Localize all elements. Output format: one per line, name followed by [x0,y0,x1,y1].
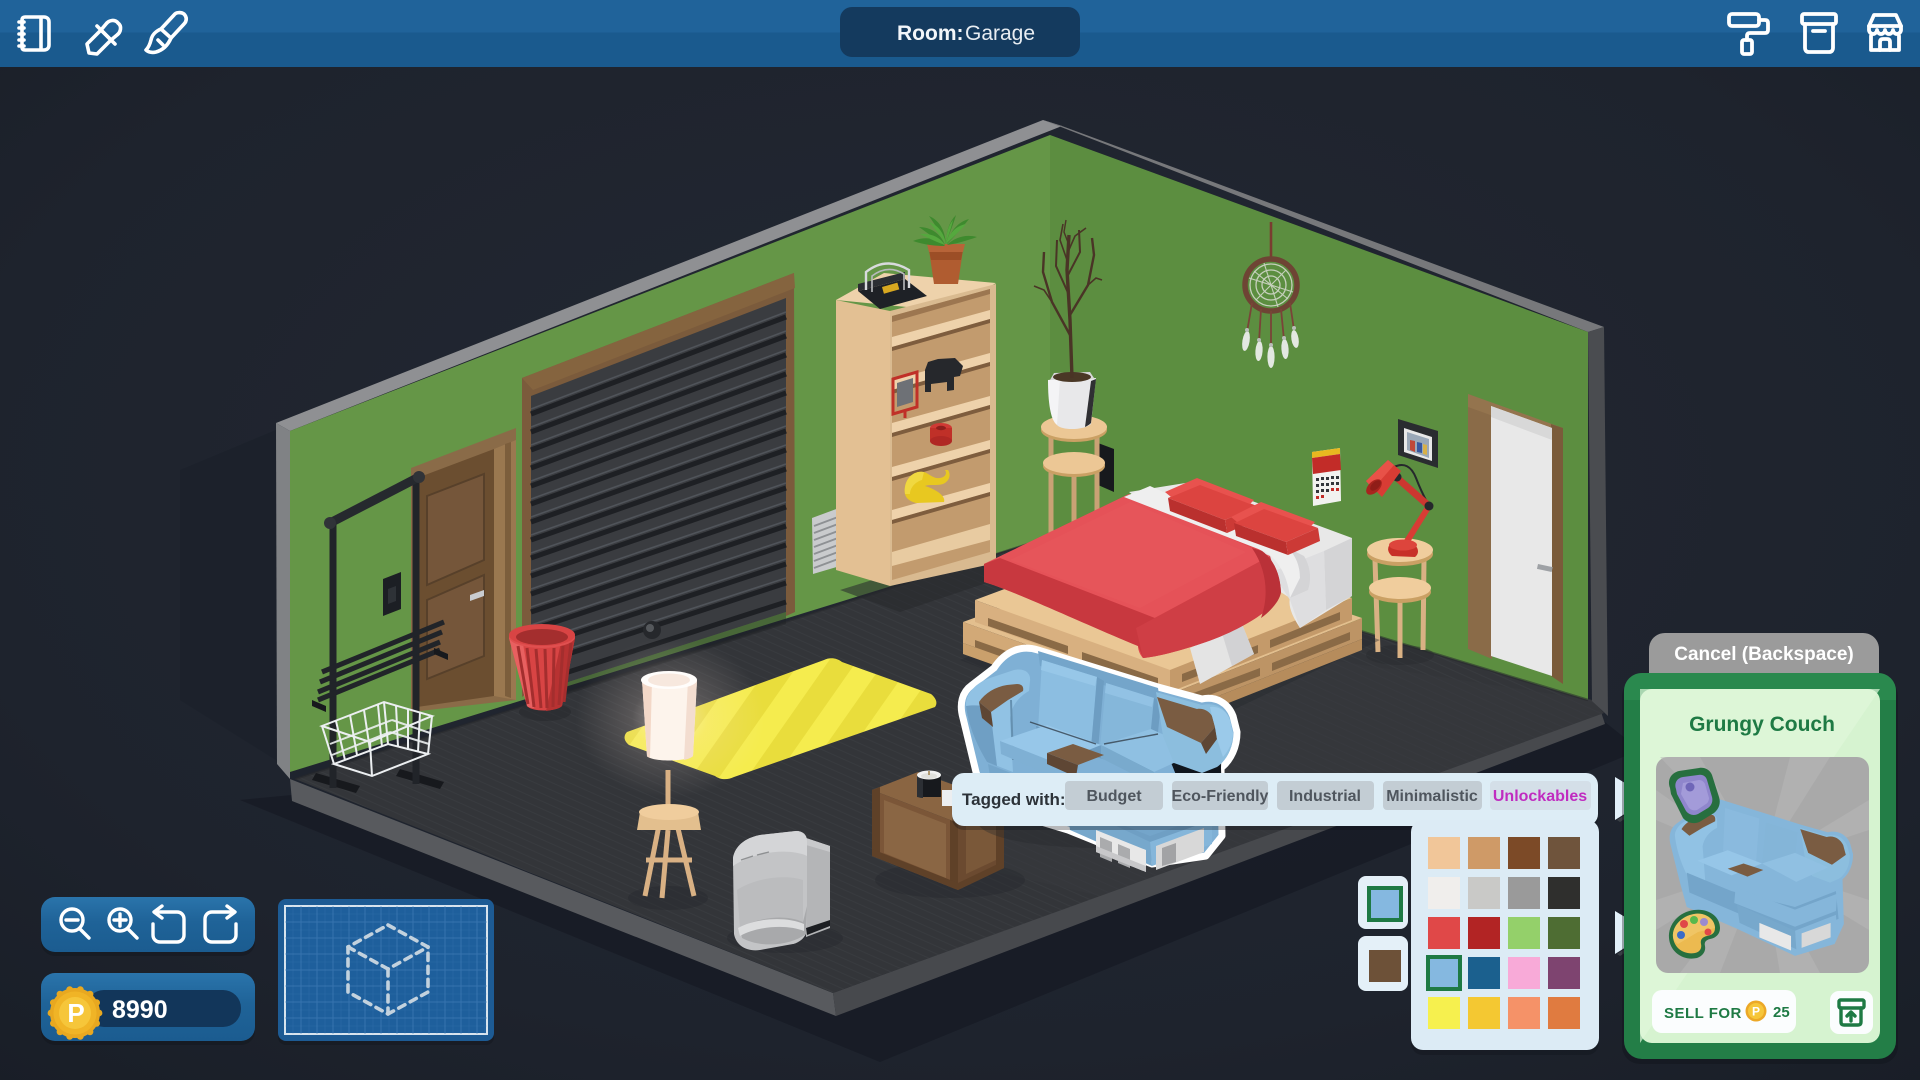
svg-text:Industrial: Industrial [1289,788,1361,805]
svg-text:Unlockables: Unlockables [1493,788,1587,805]
svg-text:Grungy Couch: Grungy Couch [1689,713,1835,736]
svg-text:P: P [67,998,84,1028]
svg-text:Eco-Friendly: Eco-Friendly [1172,788,1269,805]
svg-text:Garage: Garage [965,22,1035,45]
svg-text:SELL FOR: SELL FOR [1664,1005,1742,1022]
svg-text:25: 25 [1773,1004,1790,1021]
svg-text:Room:: Room: [897,22,964,45]
svg-text:8990: 8990 [112,996,168,1024]
svg-text:P: P [1752,1005,1760,1019]
svg-text:Cancel (Backspace): Cancel (Backspace) [1674,644,1854,665]
svg-text:Tagged with:: Tagged with: [962,790,1066,809]
svg-text:Budget: Budget [1086,788,1142,805]
svg-text:Minimalistic: Minimalistic [1386,788,1478,805]
